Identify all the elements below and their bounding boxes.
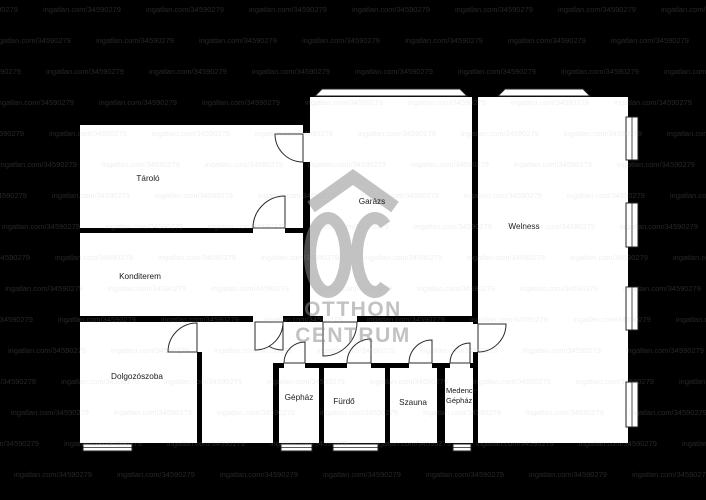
door-gap	[450, 363, 470, 368]
watermark-text: ingatlan.com/34590279	[667, 129, 706, 138]
watermark-text: ingatlan.com/34590279	[661, 5, 706, 14]
watermark-text: ingatlan.com/34590279	[611, 36, 689, 45]
watermark-text: ingatlan.com/34590279	[617, 160, 695, 169]
watermark-text: ingatlan.com/34590279	[311, 222, 389, 231]
watermark-text: ingatlan.com/34590279	[682, 439, 706, 448]
watermark-text: ingatlan.com/34590279	[405, 36, 483, 45]
room-label-medence-gephaz-line2: Gépház	[446, 396, 473, 405]
watermark-text: ingatlan.com/34590279	[258, 191, 336, 200]
watermark-text: ingatlan.com/34590279	[0, 36, 71, 45]
watermark-text: ingatlan.com/34590279	[164, 377, 242, 386]
watermark-text: ingatlan.com/34590279	[0, 129, 24, 138]
watermark-text: ingatlan.com/34590279	[679, 377, 706, 386]
watermark-text: ingatlan.com/34590279	[249, 5, 327, 14]
watermark-text: ingatlan.com/34590279	[317, 346, 395, 355]
watermark-text: ingatlan.com/34590279	[0, 160, 77, 169]
watermark-text: ingatlan.com/34590279	[208, 222, 286, 231]
floorplan-image: OTTHON CENTRUM Tároló Konditerem Dolgozó…	[0, 0, 706, 500]
watermark-text: ingatlan.com/34590279	[558, 5, 636, 14]
watermark-text: ingatlan.com/34590279	[467, 253, 545, 262]
watermark-text: ingatlan.com/34590279	[0, 191, 27, 200]
watermark-text: ingatlan.com/34590279	[43, 5, 121, 14]
watermark-text: ingatlan.com/34590279	[508, 36, 586, 45]
watermark-text: ingatlan.com/34590279	[158, 253, 236, 262]
watermark-text: ingatlan.com/34590279	[217, 408, 295, 417]
watermark-text: ingatlan.com/34590279	[108, 284, 186, 293]
watermark-text: ingatlan.com/34590279	[14, 470, 92, 479]
watermark-text: ingatlan.com/34590279	[523, 346, 601, 355]
watermark-text: ingatlan.com/34590279	[46, 67, 124, 76]
watermark-text: ingatlan.com/34590279	[49, 129, 127, 138]
watermark-text: ingatlan.com/34590279	[202, 98, 280, 107]
watermark-text: ingatlan.com/34590279	[0, 377, 36, 386]
watermark-text: ingatlan.com/34590279	[358, 129, 436, 138]
watermark-text: ingatlan.com/34590279	[458, 67, 536, 76]
watermark-text: ingatlan.com/34590279	[58, 315, 136, 324]
window	[626, 382, 638, 427]
watermark-text: ingatlan.com/34590279	[0, 253, 30, 262]
watermark-text: ingatlan.com/34590279	[167, 439, 245, 448]
watermark-text: ingatlan.com/34590279	[102, 160, 180, 169]
watermark-text: ingatlan.com/34590279	[364, 253, 442, 262]
watermark-text: ingatlan.com/34590279	[455, 5, 533, 14]
watermark-text: ingatlan.com/34590279	[567, 191, 645, 200]
room-label-medence-gephaz-line1: Medence	[446, 386, 477, 395]
watermark-text: ingatlan.com/34590279	[146, 5, 224, 14]
watermark-text: ingatlan.com/34590279	[55, 253, 133, 262]
watermark-text: ingatlan.com/34590279	[267, 377, 345, 386]
watermark-text: ingatlan.com/34590279	[214, 346, 292, 355]
watermark-text: ingatlan.com/34590279	[320, 408, 398, 417]
watermark-text: ingatlan.com/34590279	[96, 36, 174, 45]
room-label-konditerem: Konditerem	[119, 272, 161, 281]
watermark-text: ingatlan.com/34590279	[561, 67, 639, 76]
watermark-text: ingatlan.com/34590279	[314, 284, 392, 293]
watermark-text: ingatlan.com/34590279	[564, 129, 642, 138]
watermark-text: ingatlan.com/34590279	[261, 253, 339, 262]
door-gap	[347, 363, 371, 368]
window	[626, 117, 638, 160]
watermark-text: ingatlan.com/34590279	[155, 191, 233, 200]
watermark-text: ingatlan.com/34590279	[252, 67, 330, 76]
watermark-text: ingatlan.com/34590279	[220, 470, 298, 479]
watermark-text: ingatlan.com/34590279	[152, 129, 230, 138]
watermark-text: ingatlan.com/34590279	[461, 129, 539, 138]
watermark-text: ingatlan.com/34590279	[305, 98, 383, 107]
watermark-text: ingatlan.com/34590279	[464, 191, 542, 200]
room-medence-gephaz	[445, 368, 473, 443]
watermark-text: ingatlan.com/34590279	[117, 470, 195, 479]
watermark-text: ingatlan.com/34590279	[664, 67, 706, 76]
room-welness	[478, 97, 628, 443]
room-label-szauna: Szauna	[399, 398, 427, 407]
watermark-text: ingatlan.com/34590279	[426, 470, 504, 479]
watermark-text: ingatlan.com/34590279	[5, 284, 83, 293]
watermark-text: ingatlan.com/34590279	[411, 160, 489, 169]
watermark-text: ingatlan.com/34590279	[2, 222, 80, 231]
watermark-text: ingatlan.com/34590279	[0, 315, 33, 324]
room-label-furdo: Fürdő	[333, 397, 355, 406]
watermark-text: ingatlan.com/34590279	[161, 315, 239, 324]
watermark-text: ingatlan.com/34590279	[352, 5, 430, 14]
window	[453, 444, 471, 451]
watermark-text: ingatlan.com/34590279	[323, 470, 401, 479]
watermark-text: ingatlan.com/34590279	[114, 408, 192, 417]
watermark-text: ingatlan.com/34590279	[423, 408, 501, 417]
watermark-text: ingatlan.com/34590279	[64, 439, 142, 448]
floorplan-page: OTTHON CENTRUM Tároló Konditerem Dolgozó…	[0, 0, 706, 500]
watermark-text: ingatlan.com/34590279	[470, 315, 548, 324]
watermark-text: ingatlan.com/34590279	[511, 98, 589, 107]
watermark-text: ingatlan.com/34590279	[211, 284, 289, 293]
watermark-text: ingatlan.com/34590279	[579, 439, 657, 448]
watermark-text: ingatlan.com/34590279	[408, 98, 486, 107]
watermark-text: ingatlan.com/34590279	[517, 222, 595, 231]
watermark-text: ingatlan.com/34590279	[361, 191, 439, 200]
watermark-text: ingatlan.com/34590279	[308, 160, 386, 169]
room-label-tarolo: Tároló	[136, 174, 160, 183]
watermark-text: ingatlan.com/34590279	[8, 346, 86, 355]
watermark-text: ingatlan.com/34590279	[676, 315, 706, 324]
watermark-text: ingatlan.com/34590279	[111, 346, 189, 355]
welness-top-door-symbol	[498, 89, 590, 96]
watermark-text: ingatlan.com/34590279	[573, 315, 651, 324]
room-konditerem	[80, 233, 303, 316]
watermark-text: ingatlan.com/34590279	[52, 191, 130, 200]
watermark-text: ingatlan.com/34590279	[417, 284, 495, 293]
watermark-text: ingatlan.com/34590279	[61, 377, 139, 386]
watermark-text: ingatlan.com/34590279	[614, 98, 692, 107]
watermark-text: ingatlan.com/34590279	[205, 160, 283, 169]
watermark-text: ingatlan.com/34590279	[526, 408, 604, 417]
watermark-text: ingatlan.com/34590279	[302, 36, 380, 45]
watermark-text: ingatlan.com/34590279	[367, 315, 445, 324]
watermark-text: ingatlan.com/34590279	[0, 98, 74, 107]
watermark-text: ingatlan.com/34590279	[473, 377, 551, 386]
watermark-text: ingatlan.com/34590279	[514, 160, 592, 169]
watermark-text: ingatlan.com/34590279	[373, 439, 451, 448]
room-label-gephaz: Gépház	[285, 393, 314, 402]
watermark-text: ingatlan.com/34590279	[0, 439, 39, 448]
watermark-text: ingatlan.com/34590279	[270, 439, 348, 448]
watermark-text: ingatlan.com/34590279	[105, 222, 183, 231]
watermark-text: ingatlan.com/34590279	[370, 377, 448, 386]
watermark-text: ingatlan.com/34590279	[0, 5, 18, 14]
watermark-text: ingatlan.com/34590279	[576, 377, 654, 386]
watermark-text: ingatlan.com/34590279	[626, 346, 704, 355]
door-gap	[409, 363, 432, 368]
watermark-text: ingatlan.com/34590279	[529, 470, 607, 479]
garage-door-symbol	[315, 89, 467, 96]
watermark-text: ingatlan.com/34590279	[520, 284, 598, 293]
watermark-text: ingatlan.com/34590279	[476, 439, 554, 448]
watermark-text: ingatlan.com/34590279	[620, 222, 698, 231]
watermark-text: ingatlan.com/34590279	[255, 129, 333, 138]
watermark-text: ingatlan.com/34590279	[670, 191, 706, 200]
watermark-text: ingatlan.com/34590279	[420, 346, 498, 355]
door-gap	[284, 363, 305, 368]
watermark-text: ingatlan.com/34590279	[199, 36, 277, 45]
watermark-text: ingatlan.com/34590279	[414, 222, 492, 231]
watermark-text: ingatlan.com/34590279	[149, 67, 227, 76]
watermark-text: ingatlan.com/34590279	[623, 284, 701, 293]
door-gap	[197, 322, 202, 352]
watermark-text: ingatlan.com/34590279	[11, 408, 89, 417]
watermark-text: ingatlan.com/34590279	[570, 253, 648, 262]
watermark-text: ingatlan.com/34590279	[0, 67, 21, 76]
watermark-text: ingatlan.com/34590279	[673, 253, 706, 262]
watermark-text: ingatlan.com/34590279	[264, 315, 342, 324]
logo-text-centrum: CENTRUM	[295, 324, 411, 347]
watermark-text: ingatlan.com/34590279	[355, 67, 433, 76]
watermark-text: ingatlan.com/34590279	[632, 470, 706, 479]
watermark-text: ingatlan.com/34590279	[629, 408, 706, 417]
watermark-text: ingatlan.com/34590279	[99, 98, 177, 107]
